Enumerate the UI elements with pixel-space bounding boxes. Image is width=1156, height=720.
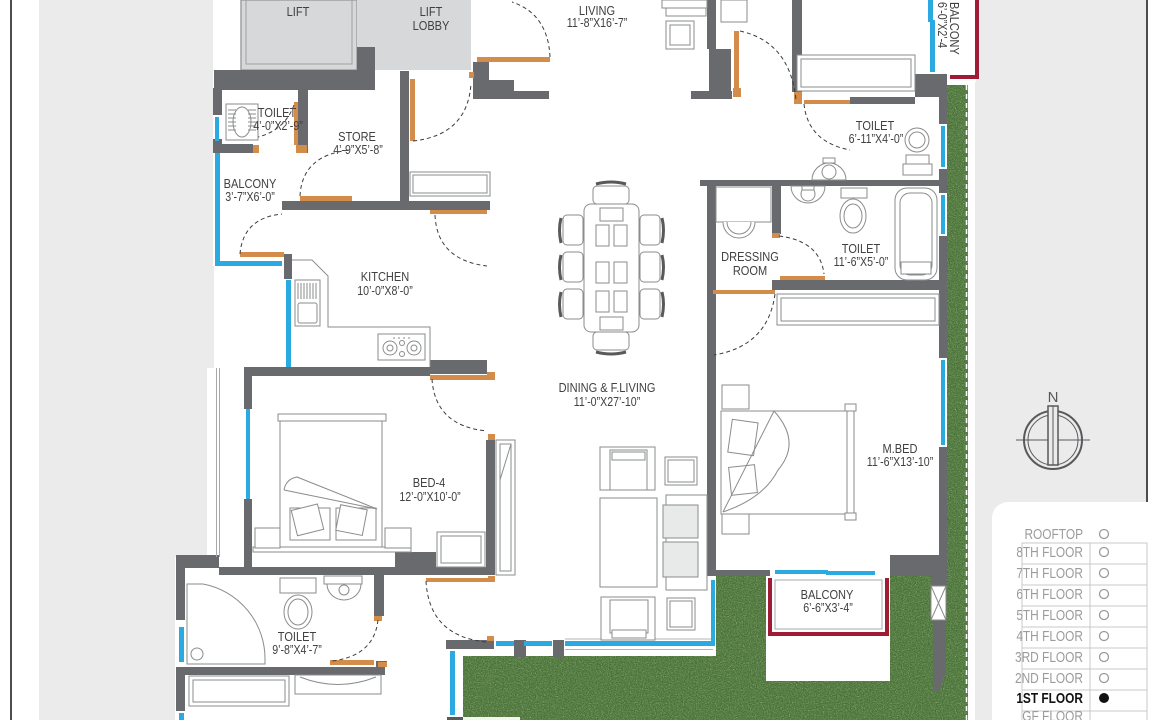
svg-text:10’-0”X8’-0”: 10’-0”X8’-0” [357, 284, 413, 298]
svg-text:6’-6”X3’-4”: 6’-6”X3’-4” [803, 601, 853, 615]
svg-text:11’-0”X27’-10”: 11’-0”X27’-10” [574, 395, 641, 409]
svg-text:DRESSING: DRESSING [721, 249, 779, 264]
svg-text:TOILET: TOILET [856, 118, 895, 133]
svg-text:7TH FLOOR: 7TH FLOOR [1016, 565, 1083, 581]
svg-text:N: N [1048, 389, 1059, 406]
svg-text:DINING & F.LIVING: DINING & F.LIVING [559, 380, 656, 395]
svg-text:3RD FLOOR: 3RD FLOOR [1015, 649, 1083, 665]
svg-text:11’-8”X16’-7”: 11’-8”X16’-7” [567, 16, 628, 30]
svg-text:9’-8”X4’-7”: 9’-8”X4’-7” [272, 643, 322, 657]
svg-text:KITCHEN: KITCHEN [361, 269, 409, 284]
svg-text:ROOM: ROOM [733, 263, 767, 278]
svg-text:LIFT: LIFT [287, 4, 310, 19]
svg-text:12’-0”X10’-0”: 12’-0”X10’-0” [399, 490, 461, 504]
svg-text:BED-4: BED-4 [413, 475, 446, 490]
svg-text:TOILET: TOILET [278, 629, 317, 644]
svg-text:3’-7”X6’-0”: 3’-7”X6’-0” [225, 190, 275, 204]
svg-text:4TH FLOOR: 4TH FLOOR [1016, 628, 1083, 644]
svg-text:STORE: STORE [338, 129, 376, 144]
svg-text:ROOFTOP: ROOFTOP [1024, 526, 1083, 542]
svg-text:BALCONY: BALCONY [224, 176, 277, 191]
svg-text:8TH FLOOR: 8TH FLOOR [1016, 544, 1083, 560]
svg-text:1ST FLOOR: 1ST FLOOR [1016, 690, 1083, 706]
svg-text:11’-6”X13’-10”: 11’-6”X13’-10” [867, 455, 934, 469]
svg-text:5TH FLOOR: 5TH FLOOR [1016, 607, 1083, 623]
svg-text:BALCONY: BALCONY [801, 587, 854, 602]
svg-text:6TH FLOOR: 6TH FLOOR [1016, 586, 1083, 602]
svg-text:4’-0”X2’-9”: 4’-0”X2’-9” [253, 119, 303, 133]
svg-text:2ND FLOOR: 2ND FLOOR [1015, 670, 1083, 686]
svg-text:GF FLOOR: GF FLOOR [1022, 708, 1083, 720]
svg-text:TOILET: TOILET [842, 241, 881, 256]
svg-text:TOILET: TOILET [258, 105, 297, 120]
svg-text:6’-0”X2’-4: 6’-0”X2’-4 [935, 2, 949, 49]
svg-text:4’-9”X5’-8”: 4’-9”X5’-8” [333, 143, 383, 157]
svg-text:11’-6”X5’-0”: 11’-6”X5’-0” [834, 255, 889, 269]
svg-text:6’-11”X4’-0”: 6’-11”X4’-0” [849, 132, 904, 146]
svg-text:LOBBY: LOBBY [413, 18, 450, 33]
svg-text:M.BED: M.BED [883, 441, 918, 456]
svg-text:LIFT: LIFT [420, 4, 443, 19]
